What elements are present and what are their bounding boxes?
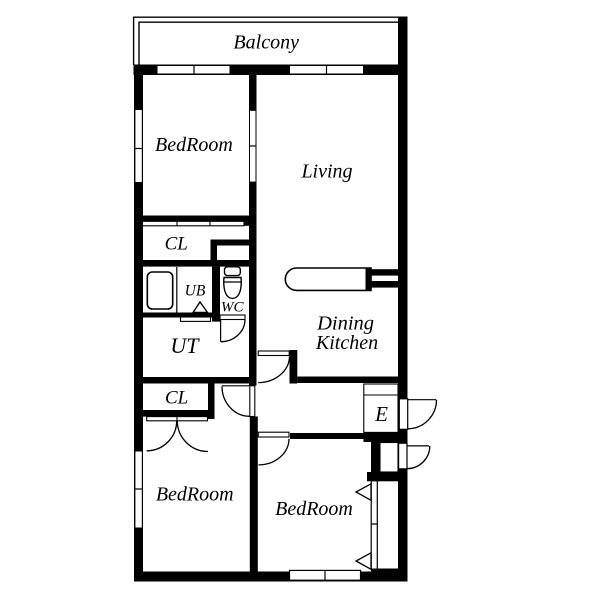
svg-text:UB: UB xyxy=(185,283,206,300)
svg-text:WC: WC xyxy=(221,300,244,316)
svg-text:E: E xyxy=(374,402,388,426)
svg-text:UT: UT xyxy=(170,333,200,358)
svg-text:BedRoom: BedRoom xyxy=(275,498,353,520)
svg-text:CL: CL xyxy=(165,388,188,409)
svg-text:CL: CL xyxy=(165,234,188,255)
svg-text:Kitchen: Kitchen xyxy=(315,332,378,354)
svg-text:BedRoom: BedRoom xyxy=(156,483,234,505)
svg-text:Living: Living xyxy=(300,160,352,182)
svg-text:BedRoom: BedRoom xyxy=(155,134,233,156)
svg-text:Balcony: Balcony xyxy=(233,31,299,53)
